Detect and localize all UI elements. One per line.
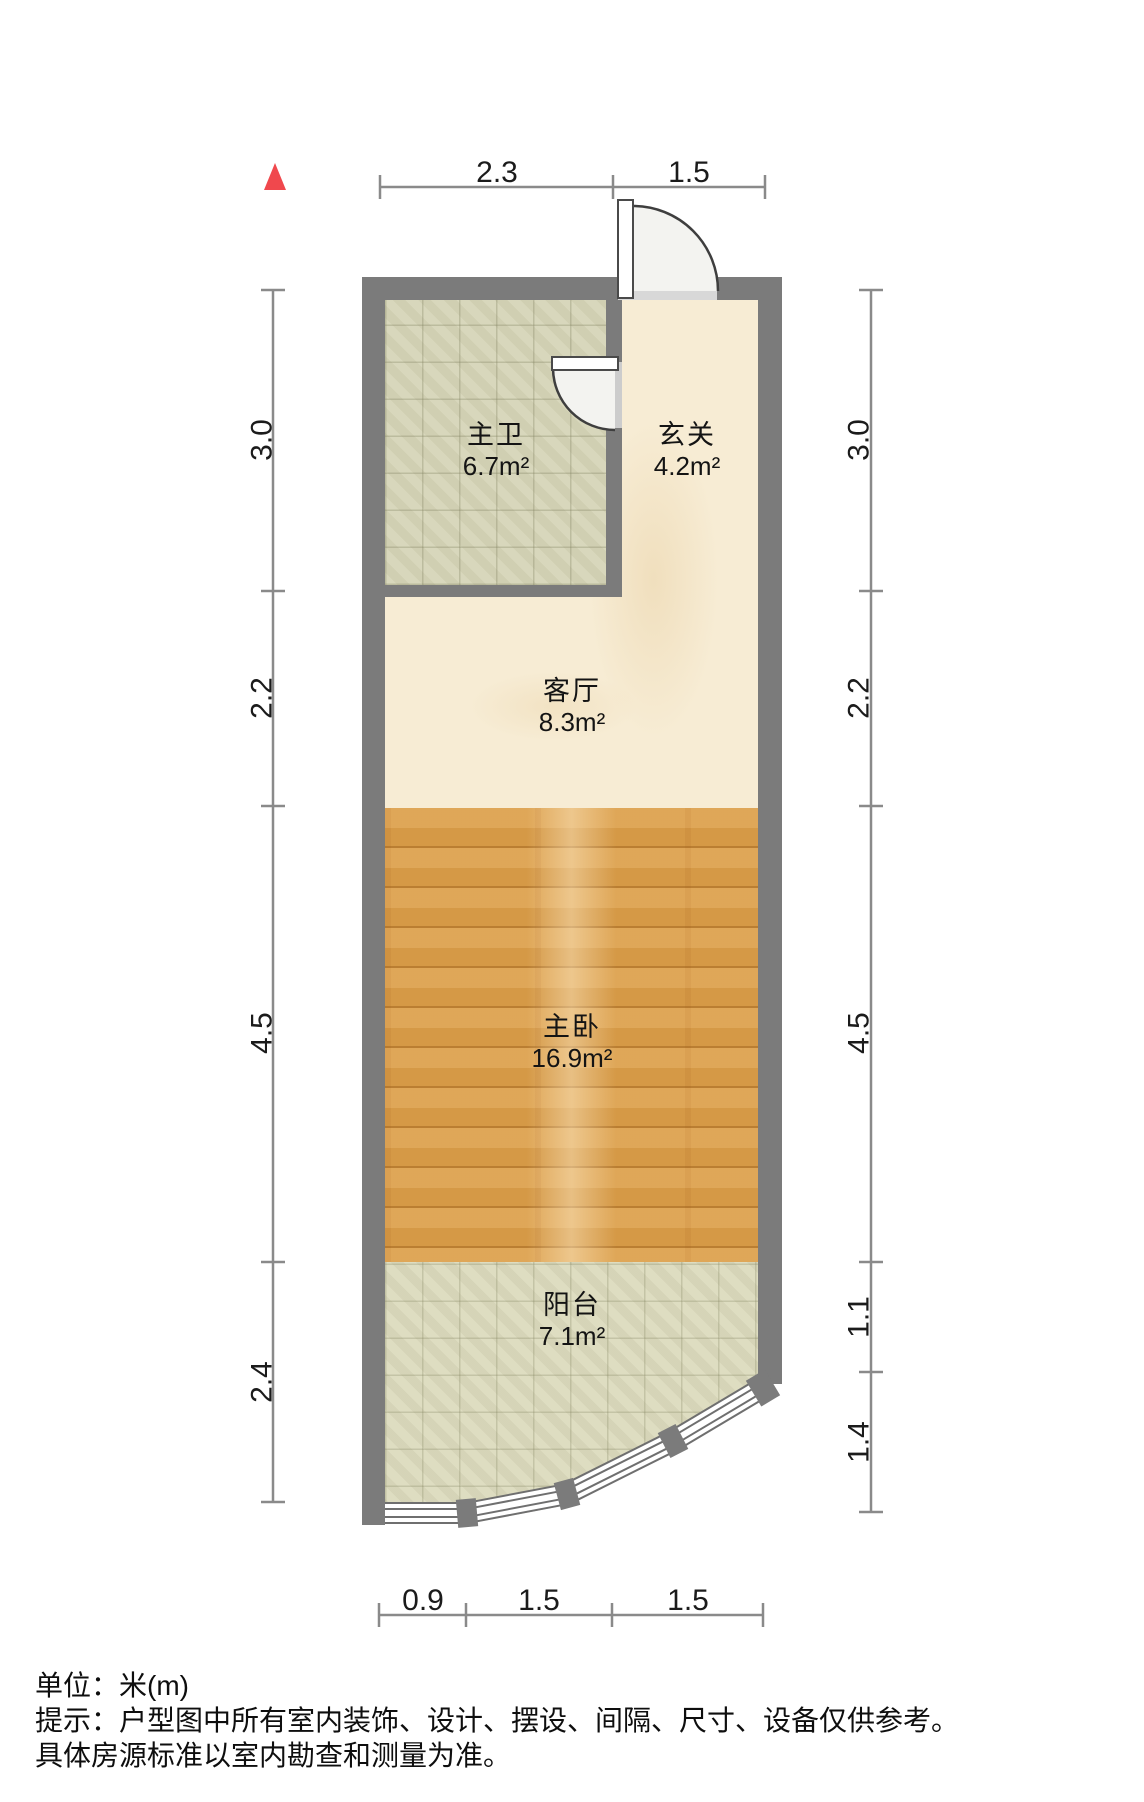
room-label-balcony: 阳台 7.1m² — [539, 1289, 605, 1351]
plan-overlay: 2.3 1.5 0.9 1.5 1.5 3.0 2.2 4.5 2.4 3.0 … — [0, 0, 1144, 1802]
room-label-foyer: 玄关 4.2m² — [654, 419, 720, 481]
room-label-bedroom: 主卧 16.9m² — [532, 1011, 613, 1073]
dim-top-1: 2.3 — [476, 156, 518, 189]
dim-bottom-3: 1.5 — [667, 1584, 709, 1617]
bathroom-door-icon — [552, 357, 622, 430]
north-arrow-icon — [264, 163, 286, 190]
floorplan-canvas: 2.3 1.5 0.9 1.5 1.5 3.0 2.2 4.5 2.4 3.0 … — [0, 0, 1144, 1802]
room-name: 阳台 — [539, 1289, 605, 1321]
dim-right-3: 4.5 — [843, 1012, 876, 1054]
room-area: 8.3m² — [539, 707, 605, 737]
dim-bottom-2: 1.5 — [518, 1584, 560, 1617]
dim-left-3: 4.5 — [246, 1012, 279, 1054]
footer-note-line1: 提示：户型图中所有室内装饰、设计、摆设、间隔、尺寸、设备仅供参考。 — [35, 1703, 959, 1738]
dim-left-2: 2.2 — [246, 677, 279, 719]
dim-left-4: 2.4 — [246, 1361, 279, 1403]
room-area: 4.2m² — [654, 451, 720, 481]
dim-right-5: 1.4 — [843, 1421, 876, 1463]
room-name: 客厅 — [539, 675, 605, 707]
footer-disclaimer: 单位：米(m) 提示：户型图中所有室内装饰、设计、摆设、间隔、尺寸、设备仅供参考… — [35, 1668, 959, 1773]
dim-right-2: 2.2 — [843, 677, 876, 719]
footer-note-line2: 具体房源标准以室内勘查和测量为准。 — [35, 1738, 959, 1773]
dim-bottom-1: 0.9 — [402, 1584, 444, 1617]
dim-left-1: 3.0 — [246, 419, 279, 461]
room-name: 主卫 — [463, 419, 529, 451]
dim-right-1: 3.0 — [843, 419, 876, 461]
room-area: 7.1m² — [539, 1321, 605, 1351]
entry-door-icon — [618, 200, 718, 300]
room-label-living: 客厅 8.3m² — [539, 675, 605, 737]
room-name: 玄关 — [654, 419, 720, 451]
room-label-bathroom: 主卫 6.7m² — [463, 419, 529, 481]
dim-right-4: 1.1 — [843, 1296, 876, 1338]
room-area: 6.7m² — [463, 451, 529, 481]
room-area: 16.9m² — [532, 1043, 613, 1073]
room-name: 主卧 — [532, 1011, 613, 1043]
dim-top-2: 1.5 — [668, 156, 710, 189]
footer-unit-line: 单位：米(m) — [35, 1668, 959, 1703]
